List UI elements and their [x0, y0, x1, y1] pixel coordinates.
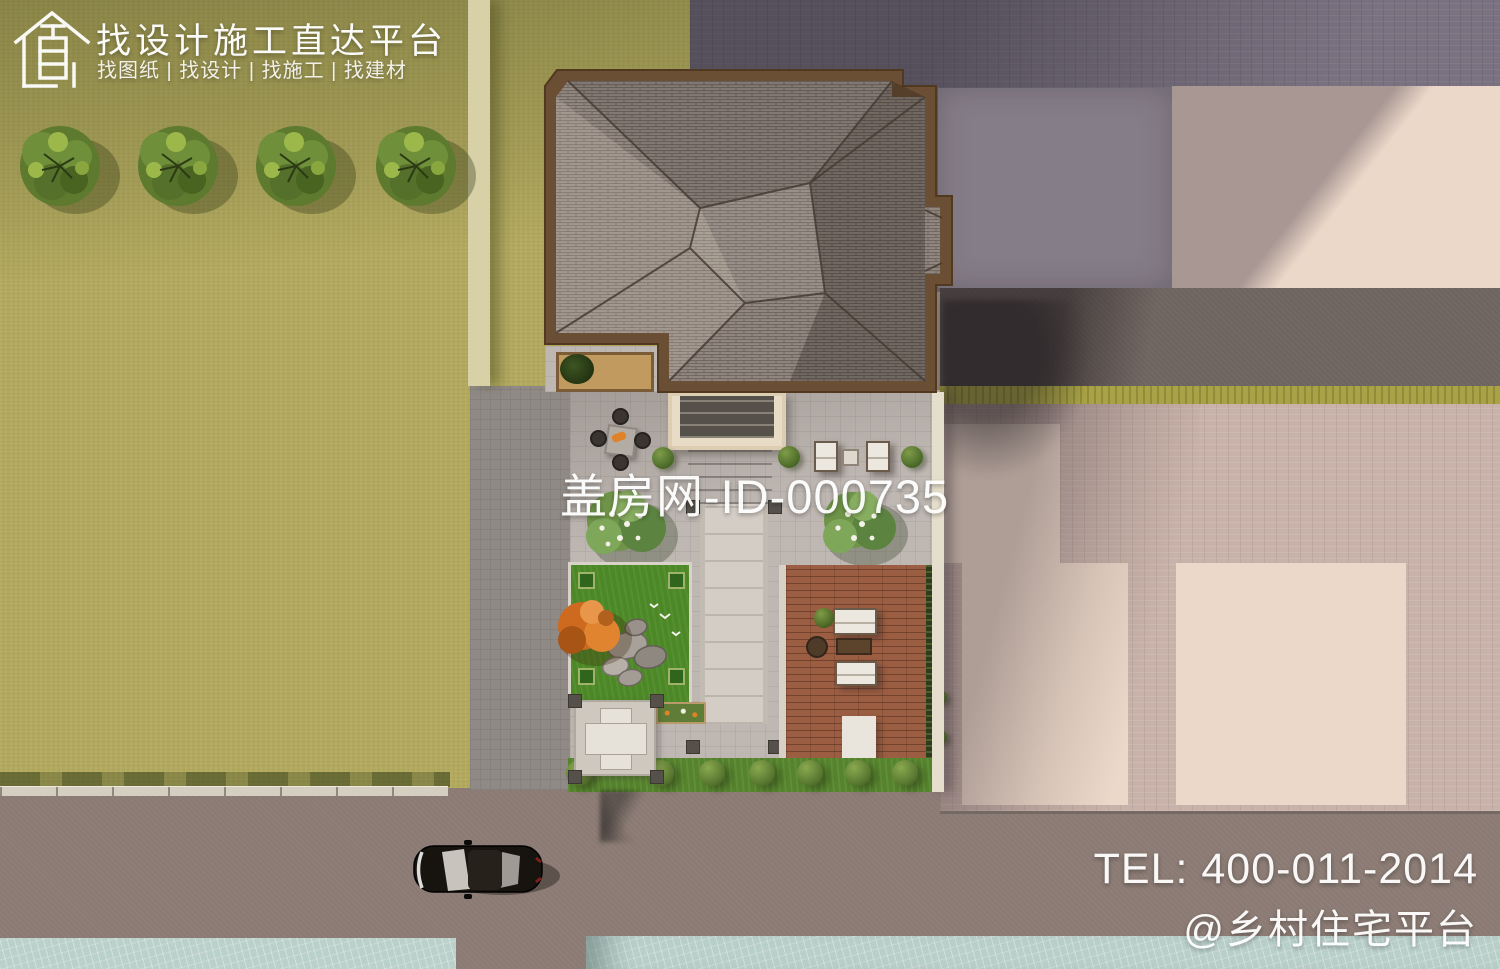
patio-post: [568, 694, 582, 708]
aerial-render-scene: 找设计施工直达平台 找图纸 | 找设计 | 找施工 | 找建材 盖房网-ID-0…: [0, 0, 1500, 969]
dining-chair: [634, 432, 651, 449]
deck-mat: [842, 716, 876, 758]
hedge-bush: [699, 760, 725, 786]
walkway-post: [686, 740, 700, 754]
plaza-tree-shadow: [942, 300, 1092, 480]
cross-patio-cross-h: [585, 723, 647, 755]
patio-post: [568, 770, 582, 784]
front-fence: [0, 786, 448, 796]
street-tree: [120, 108, 244, 232]
street-tree: [358, 108, 482, 232]
dining-table: [604, 424, 638, 458]
house-logo-icon: [12, 6, 92, 90]
center-walkway: [700, 504, 768, 724]
deck-coffee-table: [836, 638, 872, 655]
entry-porch-steps-shaded: [680, 396, 774, 438]
neighbor-flat-pad-cream-shadow: [1172, 86, 1500, 288]
deck-edge-wall: [779, 565, 786, 759]
hedge-shadow-strip: [0, 772, 450, 787]
lawn-corner-planter: [578, 572, 595, 589]
dining-chair: [590, 430, 607, 447]
neighbor-flat-pad-gray: [938, 88, 1172, 288]
deck-lounger: [835, 661, 877, 686]
house-hip-roof: [540, 58, 960, 398]
deck-lounger: [833, 608, 877, 635]
patio-post: [650, 694, 664, 708]
watermark-social: @乡村住宅平台: [1183, 897, 1478, 955]
watermark-tel: TEL: 400-011-2014: [1094, 845, 1478, 894]
gate-shadow: [600, 790, 690, 842]
deck-round-table: [806, 636, 828, 658]
river-left: [0, 938, 456, 969]
hedge-bush: [845, 760, 871, 786]
courtyard-right-wall: [932, 392, 944, 792]
plaza-pad-3: [1176, 563, 1406, 805]
street-tree: [238, 108, 362, 232]
hedge-bush: [892, 760, 918, 786]
orange-tree: [544, 588, 636, 676]
hedge-bush: [749, 760, 775, 786]
patio-post: [650, 770, 664, 784]
lawn-corner-planter: [668, 572, 685, 589]
brand-subtitle: 找图纸 | 找设计 | 找施工 | 找建材: [97, 54, 407, 83]
deck-plant: [814, 608, 834, 628]
watermark-center-id: 盖房网-ID-000735: [560, 458, 949, 527]
hedge-bush: [797, 760, 823, 786]
street-tree: [2, 108, 126, 232]
dining-chair: [612, 408, 629, 425]
parked-car: [406, 834, 566, 910]
